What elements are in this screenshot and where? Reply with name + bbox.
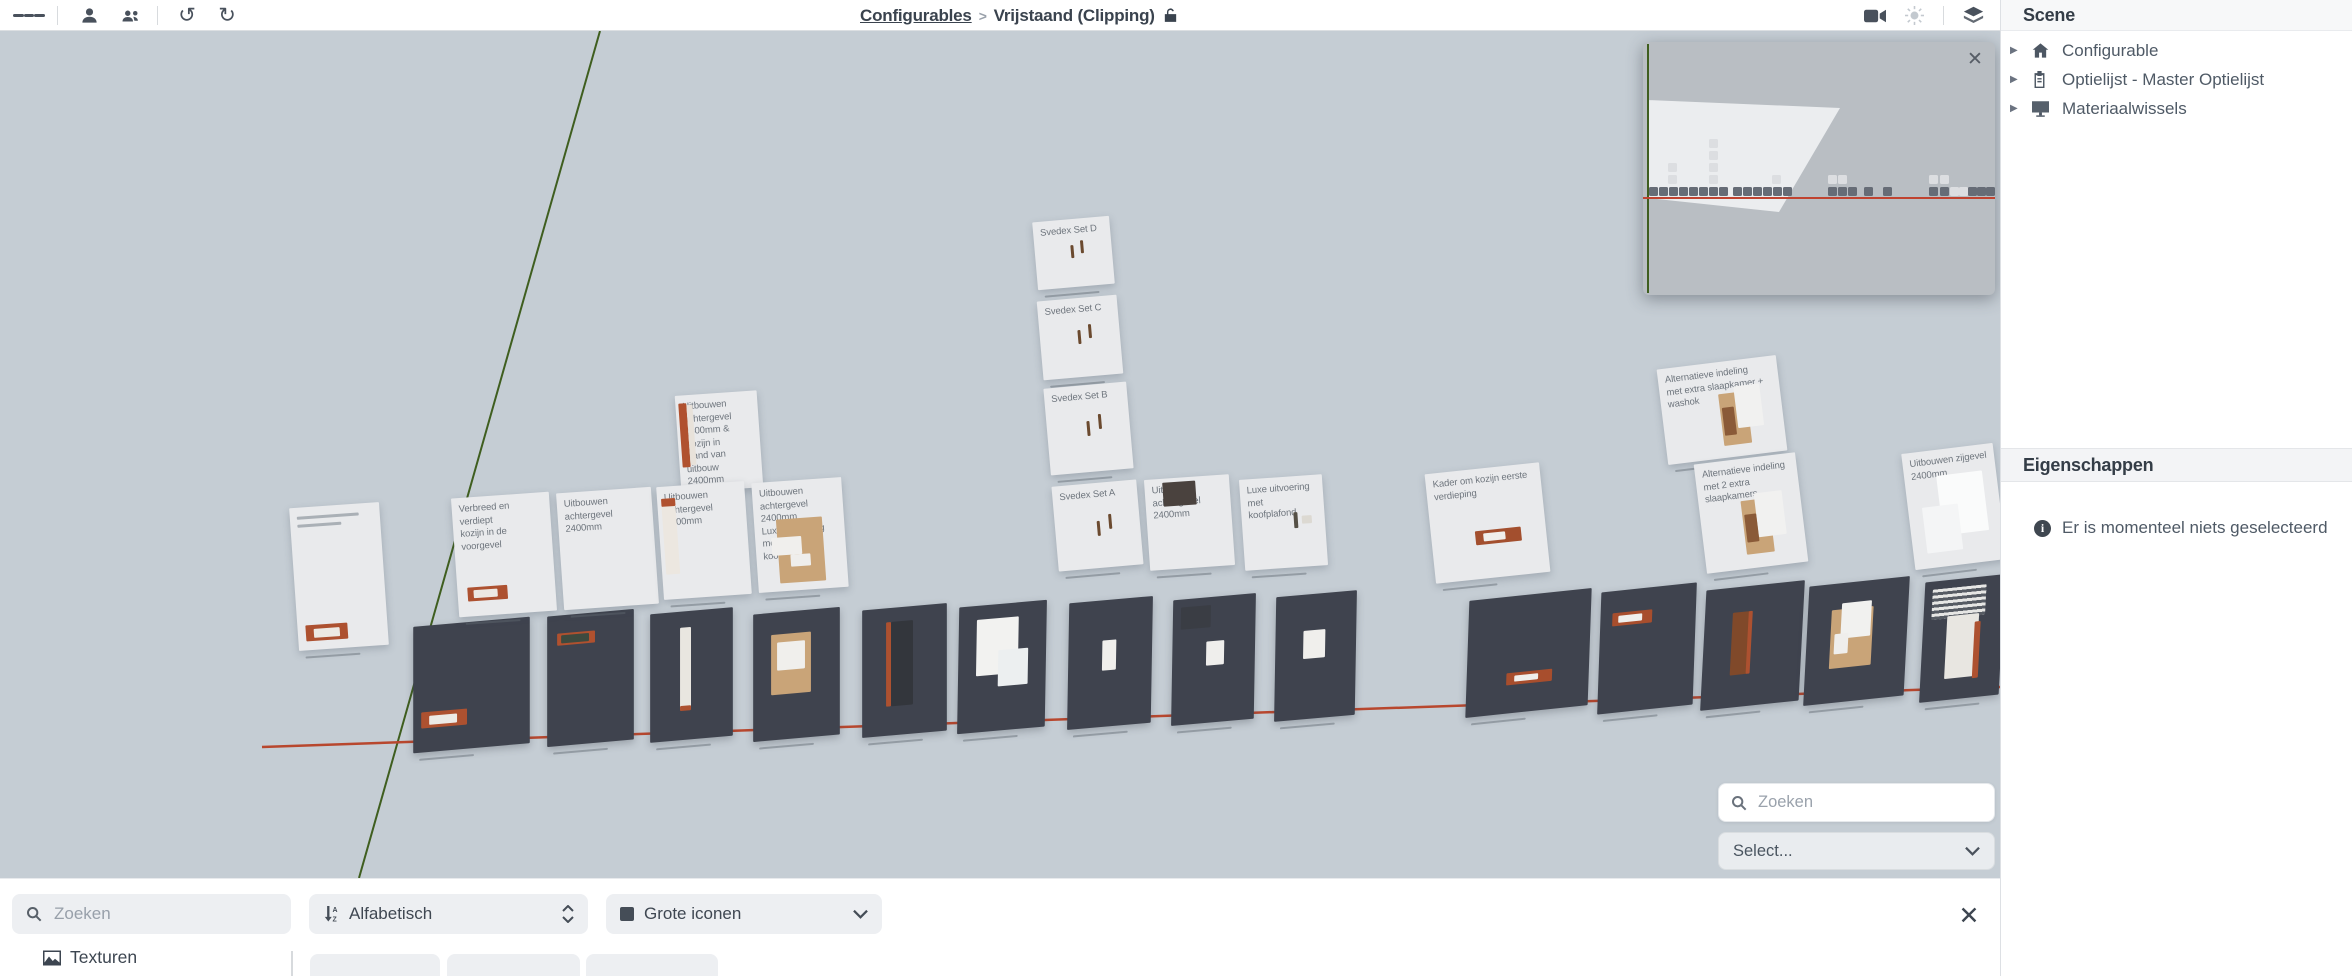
scene-object (1834, 633, 1849, 655)
scene-tile[interactable] (1067, 596, 1153, 730)
search-icon (1731, 795, 1747, 811)
scene-tile[interactable] (1919, 574, 2000, 703)
minimap[interactable]: ✕ (1643, 42, 1995, 295)
scene-tile[interactable] (862, 603, 947, 738)
info-icon: i (2034, 520, 2051, 537)
scene-caption (963, 734, 1018, 741)
scene-caption (1809, 705, 1864, 713)
minimap-block (1940, 187, 1949, 196)
scene-card[interactable]: Uitbouwen achtergevel 2400mm (556, 487, 659, 610)
image-icon (43, 950, 61, 966)
scene-object (1754, 490, 1787, 537)
app-window: ↺ ↻ Configurables > Vrijstaand (Clipping… (0, 0, 2352, 976)
scene-object (1303, 629, 1325, 659)
scene-card[interactable]: Alternatieve indeling met extra slaapkam… (1657, 355, 1788, 465)
scene-tile[interactable] (1803, 576, 1910, 706)
menu-icon[interactable] (13, 0, 45, 31)
breadcrumb-separator: > (979, 8, 987, 24)
minimap-block (1838, 187, 1847, 196)
large-icon-glyph (620, 907, 634, 921)
asset-search (12, 894, 291, 934)
scene-caption (765, 594, 820, 600)
chevron-down-icon (1965, 846, 1980, 856)
minimap-block (1689, 187, 1698, 196)
minimap-block (1883, 187, 1892, 196)
tree-item-configurable[interactable]: ▶ Configurable (2001, 36, 2352, 65)
scene-card[interactable]: Uitbouwen achtergevel 2400mm & Kozijn in… (675, 390, 764, 492)
updown-spinner-icon (562, 905, 574, 923)
minimap-block (1783, 187, 1792, 196)
minimap-green-axis (1647, 44, 1649, 293)
scene-caption (656, 743, 711, 750)
scene-object (473, 589, 497, 599)
caret-right-icon[interactable]: ▶ (2010, 74, 2020, 85)
scene-object (1108, 514, 1112, 529)
minimap-block (1709, 151, 1718, 160)
scene-card[interactable]: Svedex Set D (1032, 216, 1115, 290)
scene-caption (868, 738, 923, 745)
minimap-block (1699, 187, 1708, 196)
scene-card-label: Svedex Set D (1040, 222, 1106, 240)
caret-right-icon[interactable]: ▶ (2010, 103, 2020, 114)
minimap-block (1709, 187, 1718, 196)
minimap-frustum (1643, 42, 1995, 295)
scene-caption (1922, 568, 1977, 577)
clipboard-icon (2032, 71, 2050, 88)
minimap-red-axis (1643, 197, 1995, 199)
scene-caption (1925, 702, 1980, 710)
minimap-block (1709, 139, 1718, 148)
scene-object (1922, 504, 1963, 554)
minimap-block (1709, 175, 1718, 184)
properties-empty-message: Er is momenteel niets geselecteerd (2062, 518, 2328, 538)
redo-icon[interactable]: ↻ (212, 0, 242, 31)
top-toolbar: ↺ ↻ Configurables > Vrijstaand (Clipping… (0, 0, 2000, 31)
scene-caption (305, 652, 360, 658)
scene-tile[interactable] (753, 607, 840, 742)
minimap-block (1828, 187, 1837, 196)
minimap-block (1709, 163, 1718, 172)
scene-sidebar: Scene ▶ Configurable ▶ Optielijst - Mast… (2000, 0, 2352, 976)
scene-object (661, 498, 676, 507)
scene-object (1162, 481, 1197, 507)
toolbar-divider (157, 6, 158, 25)
tree-item-optielijst[interactable]: ▶ Optielijst - Master Optielijst (2001, 65, 2352, 94)
scene-card[interactable]: Alternatieve indeling met 2 extra slaapk… (1694, 452, 1809, 574)
scene-card[interactable]: Verbreed en verdiept kozijn in de voorge… (451, 492, 557, 618)
breadcrumb: Configurables > Vrijstaand (Clipping) (860, 0, 1179, 31)
unlock-icon[interactable] (1162, 7, 1179, 24)
scene-card[interactable]: Uitbouwen achtergevel 2400mm (656, 481, 752, 600)
sort-dropdown-value: Alfabetisch (349, 904, 432, 924)
scene-tile[interactable] (1700, 580, 1805, 711)
viewport-search (1718, 783, 1995, 822)
minimap-block (1753, 187, 1762, 196)
properties-panel-title: Eigenschappen (2001, 448, 2352, 482)
chevron-down-icon (853, 909, 868, 919)
undo-icon[interactable]: ↺ (172, 0, 202, 31)
scene-caption (1073, 730, 1128, 737)
scene-tile[interactable] (650, 607, 733, 743)
breadcrumb-current: Vrijstaand (Clipping) (994, 6, 1155, 26)
minimap-block (1763, 187, 1772, 196)
scene-caption (759, 742, 814, 749)
viewport-select-value: Select... (1733, 842, 1793, 861)
scene-object (1097, 521, 1101, 536)
minimap-block (1940, 175, 1949, 184)
svg-text:A: A (333, 907, 338, 914)
asset-placeholder-tile[interactable] (310, 954, 440, 976)
scene-tile[interactable] (547, 609, 634, 747)
scene-tile[interactable] (1171, 593, 1256, 726)
toolbar-divider (57, 6, 58, 25)
minimap-block (1959, 187, 1968, 196)
scene-object (1086, 421, 1090, 436)
scene-object (1181, 605, 1211, 630)
scene-tile[interactable] (1597, 582, 1697, 714)
viewport-search-input[interactable] (1756, 792, 1956, 813)
scene-object (680, 705, 691, 711)
tree-item-label: Configurable (2062, 41, 2158, 61)
scene-caption (419, 754, 474, 761)
scene-panel-title: Scene (2001, 0, 2352, 31)
users-group-icon[interactable] (116, 0, 146, 31)
scene-caption (670, 601, 725, 607)
scene-card[interactable]: Kader om kozijn eerste verdieping (1425, 462, 1551, 583)
minimap-block (1773, 187, 1782, 196)
sort-az-icon: AZ (323, 906, 339, 923)
tab-divider (291, 951, 293, 976)
tab-textures-label: Texturen (70, 947, 137, 968)
scene-card-label: Svedex Set C (1044, 301, 1113, 319)
scene-object (1080, 240, 1084, 253)
layers-icon[interactable] (1956, 0, 1990, 31)
scene-object (1077, 330, 1081, 344)
scene-card-label: Uitbouwen achtergevel 2400mm (563, 493, 648, 536)
scene-object (297, 512, 359, 519)
asset-placeholder-tile[interactable] (586, 954, 718, 976)
display-icon (2032, 101, 2050, 117)
scene-object (1088, 324, 1092, 338)
scene-caption (1252, 572, 1307, 578)
properties-empty-state: i Er is momenteel niets geselecteerd (2034, 518, 2328, 538)
scene-object (297, 522, 341, 528)
minimap-block (1649, 187, 1658, 196)
home-icon (2032, 42, 2050, 59)
scene-card[interactable]: Uitbouwen achtergevel 2400mm Luxe uitvoe… (751, 477, 848, 593)
scene-card-label: Svedex Set B (1051, 388, 1123, 407)
scene-object (1733, 383, 1764, 428)
minimap-block (1929, 175, 1938, 184)
toolbar-divider (1943, 6, 1944, 25)
asset-placeholder-tile[interactable] (447, 954, 580, 976)
scene-object (314, 627, 341, 638)
scene-card[interactable]: Svedex Set C (1037, 295, 1124, 381)
scene-object (1302, 515, 1313, 524)
minimap-close-icon[interactable]: ✕ (1966, 50, 1984, 68)
scene-caption (1471, 717, 1526, 725)
scene-tile[interactable] (1274, 590, 1357, 722)
scene-tile[interactable] (413, 617, 530, 754)
scene-card[interactable]: Svedex Set B (1043, 382, 1133, 476)
scene-caption (1177, 726, 1232, 733)
tree-item-label: Materiaalwissels (2062, 99, 2187, 119)
scene-card-label: Kader om kozijn eerste verdieping (1432, 469, 1537, 505)
scene-object (891, 620, 913, 706)
close-panel-icon[interactable]: ✕ (1954, 901, 1984, 931)
minimap-block (1848, 187, 1857, 196)
scene-caption (1157, 572, 1212, 578)
scene-caption (1714, 572, 1769, 581)
minimap-block (1977, 187, 1986, 196)
scene-object (771, 536, 802, 556)
minimap-block (1950, 187, 1959, 196)
sort-dropdown[interactable]: AZ Alfabetisch (309, 894, 588, 934)
minimap-block (1929, 187, 1938, 196)
minimap-block (1743, 187, 1752, 196)
svg-text:Z: Z (333, 916, 338, 923)
scene-object (1102, 639, 1116, 670)
user-icon[interactable] (74, 0, 104, 31)
scene-object (680, 627, 691, 710)
scene-tile[interactable] (957, 600, 1047, 734)
camera-icon[interactable] (1858, 0, 1892, 31)
scene-card[interactable]: Uitbouwen zijgevel 2400mm (1901, 443, 2000, 570)
minimap-block (1828, 175, 1837, 184)
minimap-block (1719, 187, 1728, 196)
minimap-block (1679, 187, 1688, 196)
scene-caption (1280, 722, 1335, 729)
minimap-block (1669, 187, 1678, 196)
scene-caption (553, 747, 608, 754)
minimap-block (1668, 163, 1677, 172)
scene-object (1098, 414, 1102, 429)
icon-size-dropdown-value: Grote iconen (644, 904, 741, 924)
search-icon (26, 906, 42, 922)
scene-caption (1603, 714, 1658, 722)
minimap-block (1968, 187, 1977, 196)
asset-search-input[interactable] (52, 903, 242, 925)
sun-icon[interactable] (1899, 0, 1929, 31)
scene-object (1070, 245, 1074, 258)
scene-card[interactable] (289, 502, 389, 651)
scene-card[interactable]: Luxe uitvoering met koofplafond (1239, 474, 1328, 571)
tree-item-label: Optielijst - Master Optielijst (2062, 70, 2264, 90)
scene-card[interactable]: Svedex Set A (1051, 479, 1143, 571)
minimap-block (1838, 175, 1847, 184)
scene-object (777, 640, 805, 671)
scene-caption (1706, 710, 1761, 718)
scene-object (1206, 640, 1224, 666)
viewport-select[interactable]: Select... (1718, 832, 1995, 870)
minimap-block (1668, 175, 1677, 184)
scene-tile[interactable] (1465, 588, 1591, 718)
scene-caption (1443, 583, 1498, 591)
scene-object (998, 648, 1029, 687)
scene-card-label: Svedex Set A (1059, 486, 1133, 505)
scene-tree: ▶ Configurable ▶ Optielijst - Master Opt… (2001, 36, 2352, 123)
breadcrumb-root-link[interactable]: Configurables (860, 6, 972, 26)
minimap-block (1659, 187, 1668, 196)
asset-browser-panel: AZ Alfabetisch Grote iconen ✕ Texturen (0, 878, 2000, 976)
scene-card[interactable]: Uitbouwen achtergevel 2400mm (1144, 474, 1235, 571)
minimap-block (1772, 175, 1781, 184)
scene-object (790, 553, 811, 566)
tab-textures[interactable]: Texturen (43, 947, 137, 968)
minimap-block (1733, 187, 1742, 196)
tree-item-materiaalwissels[interactable]: ▶ Materiaalwissels (2001, 94, 2352, 123)
minimap-block (1864, 187, 1873, 196)
viewport-3d[interactable]: Svedex Set DSvedex Set CSvedex Set BSved… (0, 31, 2000, 878)
scene-caption (1065, 572, 1120, 579)
minimap-block (1986, 187, 1995, 196)
scene-card-label: Verbreed en verdiept kozijn in de voorge… (458, 498, 547, 554)
caret-right-icon[interactable]: ▶ (2010, 45, 2020, 56)
icon-size-dropdown[interactable]: Grote iconen (606, 894, 882, 934)
